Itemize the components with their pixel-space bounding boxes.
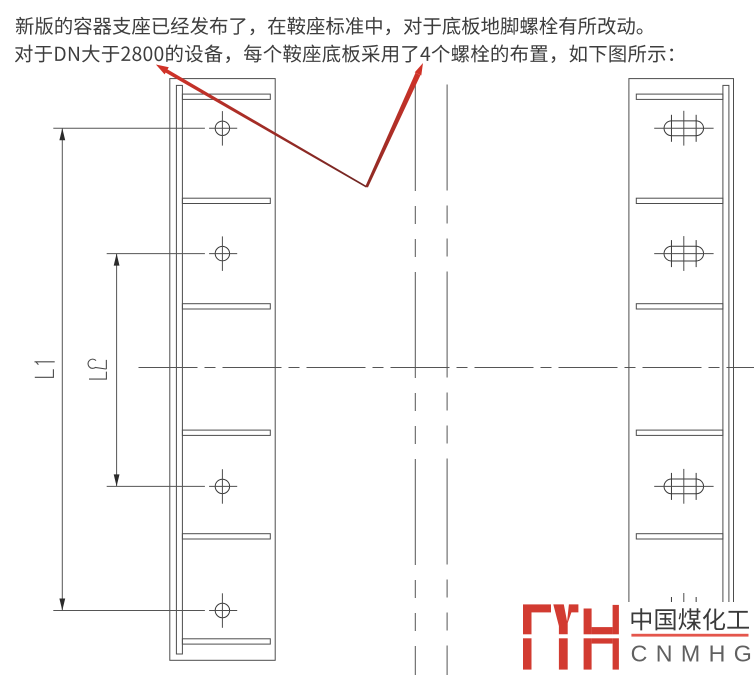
svg-text:CNMHG: CNMHG (631, 641, 754, 667)
